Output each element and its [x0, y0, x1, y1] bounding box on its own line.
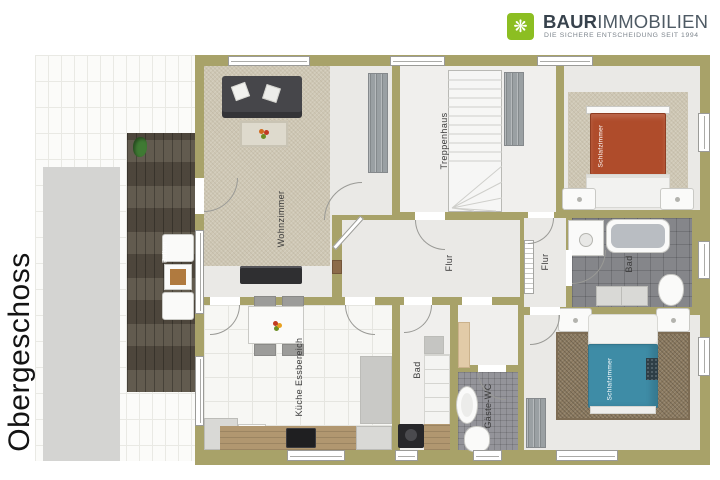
room-label-treppenhaus: Treppenhaus: [439, 112, 449, 169]
wardrobe: [526, 398, 546, 448]
door-gap: [404, 297, 432, 305]
door-gap: [530, 307, 560, 315]
nightstand: [562, 188, 596, 210]
nightstand: [558, 308, 592, 332]
balcony-table-top: [170, 269, 186, 285]
balcony-plant: [133, 137, 147, 157]
door-gap: [210, 297, 240, 305]
window: [195, 356, 204, 426]
window: [698, 241, 710, 279]
door-gap: [478, 365, 506, 372]
window: [195, 230, 204, 314]
balcony-chair: [162, 292, 194, 320]
bath-counter: [424, 424, 450, 450]
cooktop: [286, 428, 316, 448]
room-label-schlafzimmer-oben: Schlafzimmer: [598, 125, 605, 168]
coffee-rug: [240, 121, 288, 147]
window: [395, 450, 418, 461]
sink-basin: [579, 233, 593, 247]
washer-door: [405, 429, 417, 441]
radiator: [524, 240, 534, 294]
door-gap: [345, 297, 375, 305]
window: [228, 56, 310, 66]
brand-name: BAURIMMOBILIEN: [543, 11, 708, 33]
bath-cabinet: [424, 336, 444, 354]
room-label-schlafzimmer-unten: Schlafzimmer: [607, 358, 614, 401]
window: [556, 450, 618, 461]
bathroom-vanity: [596, 286, 648, 306]
knit-throw: [646, 358, 658, 380]
balcony-table: [164, 264, 192, 290]
washing-machine: [398, 424, 424, 448]
floor-title: Obergeschoss: [3, 252, 37, 451]
brand-word-bold: BAUR: [543, 11, 597, 32]
brand-tagline: DIE SICHERE ENTSCHEIDUNG SEIT 1994: [544, 32, 699, 39]
room-label-bad-klein: Bad: [412, 361, 422, 378]
brand-word-light: IMMOBILIEN: [597, 11, 708, 32]
bath-shelf: [424, 354, 450, 426]
nightstand: [660, 188, 694, 210]
room-label-bad: Bad: [624, 255, 634, 272]
hall-stool: [332, 260, 342, 274]
fruit-bowl: [259, 129, 264, 134]
toilet: [658, 274, 684, 306]
tall-cabinet: [360, 356, 392, 424]
staircase: [448, 70, 502, 212]
mat: [458, 322, 470, 368]
room-label-gaeste-wc: Gäste-WC: [483, 383, 493, 428]
logo-icon: ❋: [513, 18, 527, 35]
window: [390, 56, 445, 66]
balcony-door-gap: [195, 178, 204, 214]
room-label-flur-right: Flur: [540, 253, 550, 270]
bathtub-basin: [611, 224, 665, 248]
wc-sink: [456, 386, 478, 424]
room-label-flur: Flur: [444, 254, 454, 271]
bathtub: [606, 219, 670, 253]
wardrobe: [504, 72, 524, 146]
window: [698, 337, 710, 376]
sideboard: [368, 73, 388, 173]
door-gap: [415, 212, 445, 220]
bed-pillow-duvet: [588, 314, 658, 348]
driveway-area: [43, 167, 120, 461]
room-label-balkon: Balkon: [162, 241, 169, 263]
room-label-wohnzimmer: Wohnzimmer: [276, 191, 286, 248]
toilet: [464, 426, 490, 452]
window: [473, 450, 502, 461]
bed-blanket: [586, 174, 670, 208]
dining-chair: [254, 344, 276, 356]
fruit-bowl: [273, 321, 278, 326]
dishwasher: [356, 426, 392, 450]
window: [287, 450, 345, 461]
brand-logo: ❋: [507, 13, 534, 40]
window: [698, 113, 710, 152]
tv-lowboard: [240, 266, 302, 284]
floorplan-page: ❋ BAURIMMOBILIEN DIE SICHERE ENTSCHEIDUN…: [0, 0, 720, 480]
bed-footboard: [590, 406, 656, 414]
wc-sink-basin: [461, 393, 473, 417]
room-label-kueche: Küche Essbereich: [294, 338, 304, 417]
nightstand: [656, 308, 690, 332]
passage-gap: [462, 297, 492, 305]
window: [537, 56, 593, 66]
